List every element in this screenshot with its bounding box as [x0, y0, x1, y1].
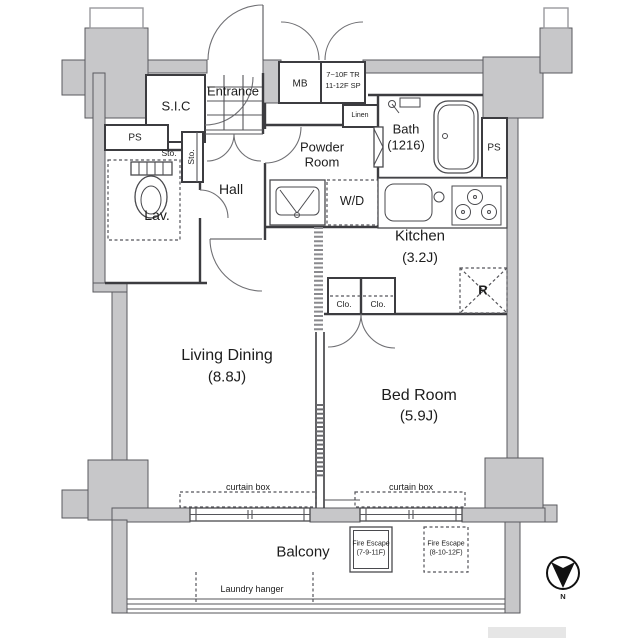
toilet-storage-label: Sto.: [161, 149, 176, 159]
balcony-label: Balcony: [276, 545, 329, 562]
kitchen-label: Kitchen: [395, 229, 445, 246]
compass-needle: [551, 562, 575, 588]
lavatory-label: Lav.: [144, 208, 169, 224]
floorplan: S.I.C Entrance MB 7~10F TR 11-12F SP Lin…: [0, 0, 639, 640]
living-dining-size-label: (8.8J): [208, 370, 246, 387]
compass-north-label: N: [560, 593, 565, 601]
linen-label: Linen: [351, 112, 368, 120]
refrigerator-label: R: [478, 284, 487, 299]
meter-box-door-left: [281, 22, 319, 60]
shoe-closet-label: S.I.C: [162, 100, 191, 115]
hall-storage-label: Sto.: [187, 149, 197, 164]
closet-door-right-arc: [361, 314, 395, 348]
hall-label: Hall: [219, 182, 243, 198]
fire-escape-right-text: Fire Escape: [427, 540, 465, 549]
meter-box-door-right: [325, 22, 363, 60]
kitchen-size-label: (3.2J): [402, 250, 438, 266]
living-door-arc: [210, 239, 262, 291]
fire-escape-right-floors: (8-10-12F): [427, 549, 465, 558]
washer-dryer-label: W/D: [340, 194, 364, 208]
living-dining-label: Living Dining: [181, 347, 273, 365]
closet-left-label: Clo.: [336, 300, 351, 310]
fire-escape-right-label: Fire Escape (8-10-12F): [427, 540, 465, 558]
entrance-label: Entrance: [207, 85, 259, 100]
bath-folding-door: [374, 127, 383, 167]
closet-right-label: Clo.: [370, 300, 385, 310]
riser-note-line1: 7~10F TR: [326, 71, 359, 79]
bedroom-size-label: (5.9J): [400, 409, 438, 426]
bedroom-label: Bed Room: [381, 387, 457, 405]
kitchen-counter: [378, 178, 507, 228]
fire-escape-left-text: Fire Escape: [352, 540, 390, 549]
bath-size-label: (1216): [387, 139, 425, 154]
washbasin: [270, 180, 325, 225]
fire-escape-left-label: Fire Escape (7-9-11F): [352, 540, 390, 558]
riser-note-line2: 11-12F SP: [325, 82, 360, 90]
meter-box-label: MB: [293, 78, 308, 89]
laundry-hanger-label: Laundry hanger: [220, 584, 283, 594]
entrance-door-arc: [208, 5, 263, 60]
pipe-space-left-label: PS: [128, 132, 141, 143]
curtain-box-bedroom: [355, 492, 465, 507]
curtain-box-living-label: curtain box: [226, 482, 270, 492]
compass: [547, 557, 579, 589]
pipe-space-right-label: PS: [487, 142, 500, 153]
balcony-wall-right: [505, 522, 520, 613]
watermark-bar: [488, 627, 566, 638]
hall-door-left-arc: [207, 134, 234, 161]
pillar-top-right: [483, 57, 543, 118]
living-window: [190, 508, 310, 521]
hall-door-right-arc: [234, 134, 261, 161]
toilet: [108, 160, 180, 240]
bedroom-window: [360, 508, 462, 521]
closet-door-left-arc: [328, 314, 361, 347]
curtain-box-living: [180, 492, 316, 507]
fire-escape-left-floors: (7-9-11F): [352, 549, 390, 558]
bath-label: Bath: [393, 123, 420, 138]
powder-room-label: Powder Room: [290, 140, 354, 169]
balcony-wall-left: [112, 520, 127, 613]
curtain-box-bedroom-label: curtain box: [389, 482, 433, 492]
